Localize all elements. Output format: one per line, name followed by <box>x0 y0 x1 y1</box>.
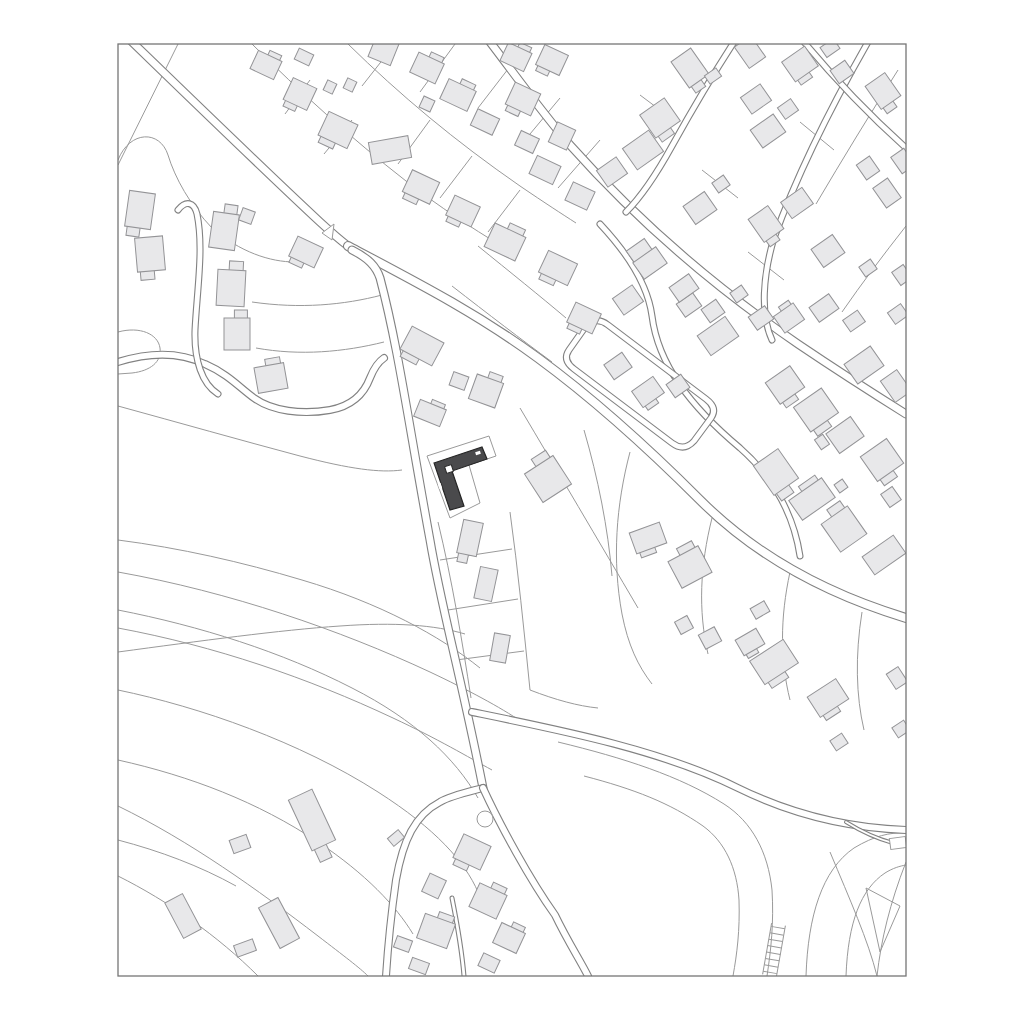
building <box>414 395 448 426</box>
building-body <box>258 898 299 949</box>
residential-loop-casing <box>566 321 713 447</box>
building-body <box>892 264 913 285</box>
building-body <box>735 628 765 656</box>
building <box>470 109 499 135</box>
building-body <box>675 616 694 635</box>
building <box>750 114 786 148</box>
building <box>891 148 916 174</box>
building-body <box>750 601 770 619</box>
building <box>443 195 480 232</box>
building-body <box>368 32 400 65</box>
building-body <box>612 285 643 315</box>
south-branch-east <box>483 788 588 976</box>
building <box>536 250 578 291</box>
building <box>468 368 505 408</box>
building <box>165 894 201 939</box>
site-plan <box>0 0 1024 1024</box>
building <box>250 46 284 80</box>
building <box>860 439 908 488</box>
building-body <box>753 449 798 496</box>
building-body <box>343 78 357 92</box>
cluster-lane-surface <box>452 898 464 976</box>
building <box>422 873 447 899</box>
building-body <box>892 720 910 738</box>
building-body <box>873 178 902 208</box>
west-loop-street <box>118 355 384 412</box>
terrace-line-3 <box>118 690 478 892</box>
building <box>503 82 541 121</box>
building-body <box>698 627 721 650</box>
field-line-3 <box>256 342 384 352</box>
building <box>281 78 317 116</box>
building-body <box>886 667 908 690</box>
building <box>856 156 879 180</box>
hillside-parcel-4 <box>857 612 864 730</box>
river-bank-2 <box>118 628 492 770</box>
building <box>698 627 721 650</box>
west-loop-street-surface <box>118 355 384 412</box>
building <box>469 877 510 919</box>
ladder-rung <box>763 971 777 973</box>
ladder-rung <box>767 952 781 954</box>
buildings-layer <box>123 26 915 974</box>
building <box>253 356 288 393</box>
river-crossing-road-casing <box>472 712 906 830</box>
building <box>294 48 314 66</box>
map-content <box>118 26 915 976</box>
building-body <box>843 310 866 332</box>
building-body <box>165 894 201 939</box>
building <box>750 601 770 619</box>
building <box>474 566 498 601</box>
building-body <box>474 566 498 601</box>
building <box>229 834 251 853</box>
building <box>455 519 483 565</box>
building <box>683 192 717 225</box>
building <box>484 217 529 261</box>
building-body <box>777 99 798 120</box>
ladder-rail-right <box>776 926 785 977</box>
site-plan-svg <box>0 0 1024 1024</box>
building <box>533 45 568 81</box>
building <box>734 36 765 69</box>
building <box>820 38 840 57</box>
building <box>862 535 906 575</box>
mid-parcel-6 <box>530 690 598 708</box>
building-body <box>135 236 166 272</box>
building <box>216 260 246 306</box>
building-body <box>862 535 906 575</box>
building <box>343 78 357 92</box>
slope-parcel-1 <box>520 408 638 608</box>
building <box>632 376 668 411</box>
terrace-line-5 <box>118 840 236 886</box>
building-body <box>565 182 595 210</box>
building-body <box>254 363 288 394</box>
building <box>843 310 866 332</box>
building-body <box>449 372 469 391</box>
building <box>777 99 798 120</box>
building-body <box>856 156 879 180</box>
building-body <box>419 96 435 112</box>
building <box>400 170 440 210</box>
building <box>397 326 444 372</box>
building <box>286 236 323 273</box>
hillside-parcel-1 <box>616 452 652 684</box>
river-bank-6 <box>846 865 906 976</box>
building-body <box>765 366 804 405</box>
building <box>209 202 241 250</box>
cross-street-east-casing <box>764 42 868 340</box>
building <box>859 259 877 277</box>
building-body <box>368 136 411 165</box>
building-body <box>529 155 561 184</box>
building <box>450 834 491 876</box>
building <box>520 448 572 502</box>
building-body <box>323 80 337 94</box>
building <box>834 479 848 493</box>
building <box>419 96 435 112</box>
building-body <box>288 789 335 851</box>
mid-parcel-2 <box>510 512 530 690</box>
building-body <box>125 190 156 229</box>
building-body <box>740 84 771 114</box>
building <box>224 310 250 350</box>
building <box>604 352 632 379</box>
building-body <box>683 192 717 225</box>
building-body <box>490 633 511 663</box>
building <box>811 235 845 268</box>
building-body <box>734 36 765 69</box>
building <box>239 208 256 225</box>
building <box>449 372 469 391</box>
building <box>865 73 905 115</box>
site-courtyard-square <box>445 465 454 474</box>
building <box>417 907 458 948</box>
building-body <box>834 479 848 493</box>
building-body <box>422 873 447 899</box>
west-field-road <box>118 624 465 652</box>
building-body <box>750 114 786 148</box>
ladder-rung <box>765 958 779 960</box>
building-body <box>209 211 240 250</box>
corner-path-2 <box>877 862 906 976</box>
cluster-lane <box>452 898 464 976</box>
zone-parcel-2 <box>452 286 552 362</box>
field-line-1 <box>118 406 402 471</box>
building <box>629 522 668 559</box>
building-body <box>478 953 500 973</box>
building <box>873 178 902 208</box>
slope-parcel-2 <box>584 430 612 576</box>
turnaround-bulb <box>477 811 493 827</box>
building-body <box>234 939 257 957</box>
building <box>892 720 910 738</box>
building <box>816 499 867 552</box>
building <box>123 190 155 238</box>
building <box>565 182 595 210</box>
building <box>892 264 913 285</box>
lot-line-7 <box>440 156 472 198</box>
building-body <box>224 318 250 350</box>
building <box>886 667 908 690</box>
building-body <box>820 38 840 57</box>
building-body <box>216 269 246 306</box>
ladder-rung <box>764 965 778 967</box>
building <box>697 316 739 355</box>
building <box>612 285 643 315</box>
river-crossing-road <box>472 712 906 830</box>
building <box>809 294 839 323</box>
mid-parcel-4 <box>448 599 518 610</box>
building <box>830 733 848 751</box>
building-body <box>789 478 836 521</box>
river-bank-4 <box>584 776 739 976</box>
building <box>135 236 167 281</box>
building-body <box>830 733 848 751</box>
corner-path-1 <box>830 852 877 976</box>
building <box>807 679 852 723</box>
terrace-line-1 <box>118 540 480 668</box>
building-body <box>470 109 499 135</box>
building <box>234 939 257 957</box>
building-body <box>821 506 867 552</box>
building-body <box>393 936 412 953</box>
field-line-2 <box>252 295 382 306</box>
building <box>493 918 528 954</box>
building <box>529 155 561 184</box>
building-body <box>811 235 845 268</box>
building-body <box>881 486 902 507</box>
building <box>315 111 358 154</box>
ladder-rung <box>768 946 782 948</box>
riverside-triangle-parcel <box>866 888 900 952</box>
residential-loop <box>566 321 713 447</box>
building-body <box>859 259 877 277</box>
building <box>410 47 447 84</box>
building <box>393 936 412 953</box>
building <box>740 84 771 114</box>
building <box>478 953 500 973</box>
path-marker-rect <box>889 836 906 849</box>
building <box>258 898 299 949</box>
building <box>368 136 411 165</box>
building <box>323 80 337 94</box>
path-marker <box>889 836 906 849</box>
building-body <box>891 148 916 174</box>
building-body <box>524 455 571 502</box>
cross-street-east-surface <box>764 42 868 340</box>
building <box>368 26 402 65</box>
building <box>515 131 540 154</box>
building <box>881 486 902 507</box>
building-body <box>809 294 839 323</box>
building-body <box>408 957 429 974</box>
building <box>664 539 712 588</box>
building-body <box>629 522 667 554</box>
building <box>826 417 864 454</box>
building <box>675 616 694 635</box>
building-body <box>697 316 739 355</box>
south-branch-east-surface <box>483 788 588 976</box>
building-body <box>807 679 849 718</box>
ladder-rung <box>771 926 785 928</box>
building-body <box>826 417 864 454</box>
site-courtyard <box>445 465 454 474</box>
river-bank-3 <box>558 742 773 976</box>
terrace-line-2 <box>118 610 478 798</box>
building-body <box>632 376 665 407</box>
building-body <box>860 439 903 482</box>
building-body <box>457 519 484 556</box>
building <box>753 449 803 503</box>
cross-street-east <box>764 42 868 340</box>
building-body <box>229 834 251 853</box>
building <box>490 633 511 663</box>
building-body <box>239 208 256 225</box>
building <box>440 74 479 112</box>
building-body <box>294 48 314 66</box>
building <box>408 957 429 974</box>
river-weir-ladder <box>763 923 786 977</box>
building-body <box>793 388 838 432</box>
building-body <box>604 352 632 379</box>
building-body <box>515 131 540 154</box>
